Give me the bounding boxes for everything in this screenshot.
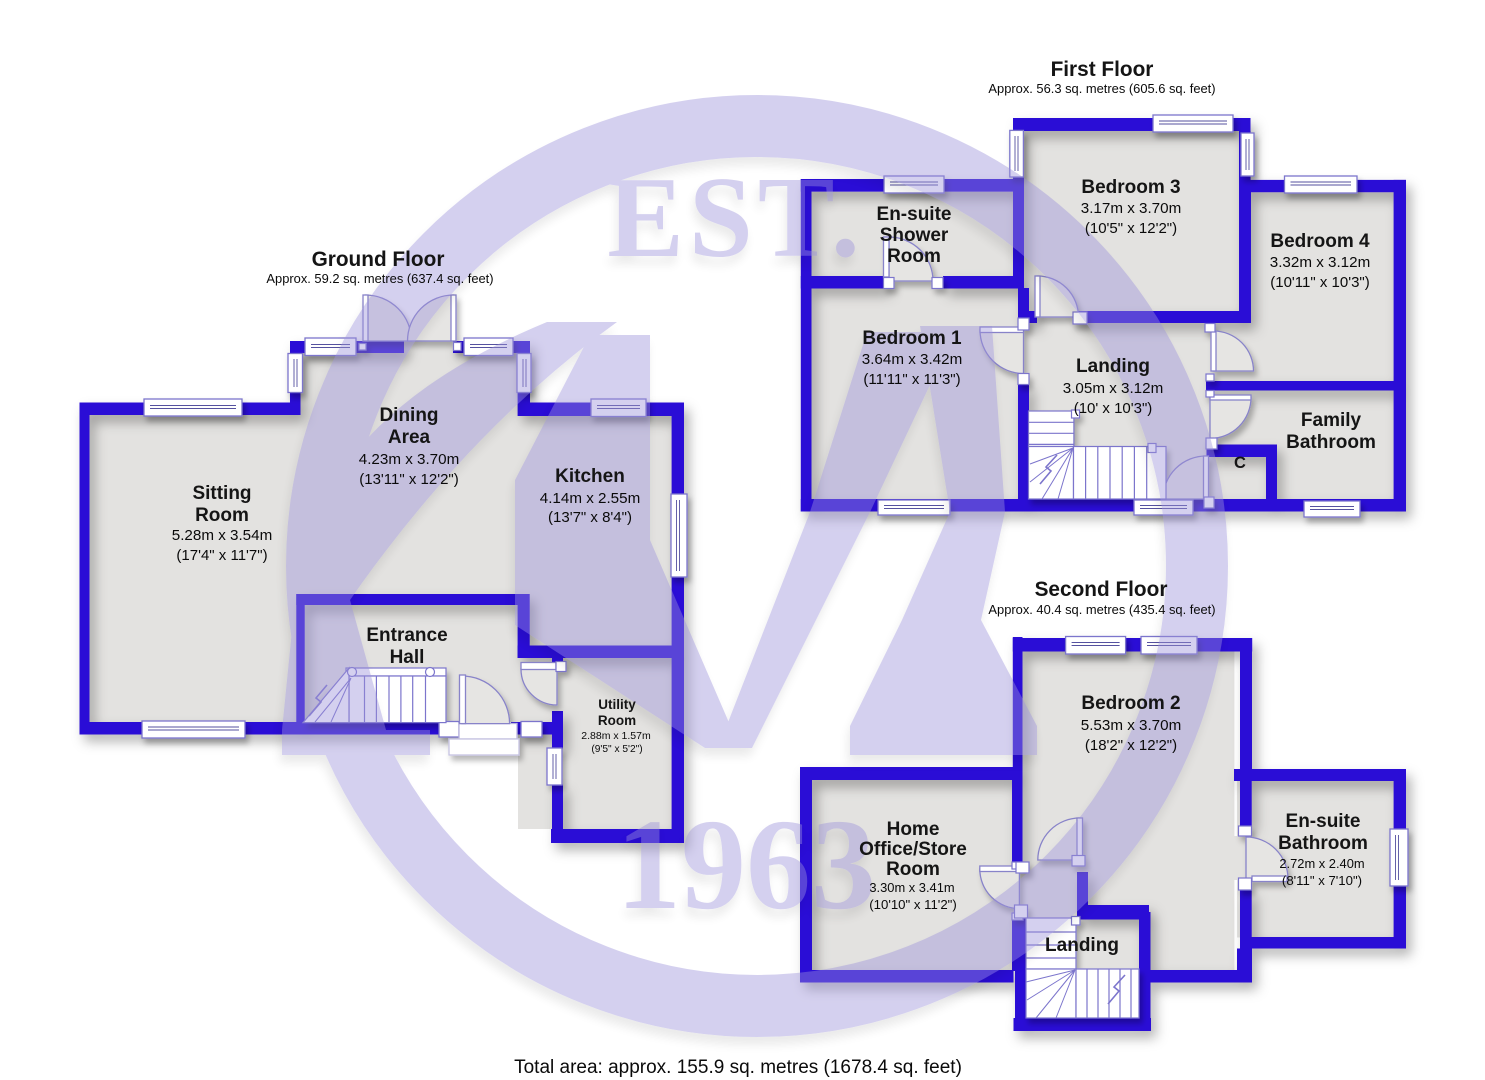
svg-text:Room: Room xyxy=(886,859,940,880)
svg-text:Bathroom: Bathroom xyxy=(1278,833,1368,854)
svg-text:(11'11" x 11'3"): (11'11" x 11'3") xyxy=(863,371,960,388)
svg-text:(13'7" x 8'4"): (13'7" x 8'4") xyxy=(548,509,632,526)
svg-text:5.53m x 3.70m: 5.53m x 3.70m xyxy=(1081,717,1181,734)
svg-text:Sitting: Sitting xyxy=(192,483,251,504)
svg-text:EST.: EST. xyxy=(607,154,865,281)
svg-text:Room: Room xyxy=(598,713,636,728)
svg-text:4.14m x 2.55m: 4.14m x 2.55m xyxy=(540,490,640,507)
svg-text:(17'4" x 11'7"): (17'4" x 11'7") xyxy=(176,547,267,564)
svg-text:2.72m x 2.40m: 2.72m x 2.40m xyxy=(1279,856,1364,871)
svg-text:(9'5" x 5'2"): (9'5" x 5'2") xyxy=(591,744,642,755)
svg-text:3.30m x 3.41m: 3.30m x 3.41m xyxy=(869,880,954,895)
svg-text:Area: Area xyxy=(388,427,431,448)
svg-text:1963: 1963 xyxy=(616,793,876,937)
svg-text:4.23m x 3.70m: 4.23m x 3.70m xyxy=(359,451,459,468)
svg-text:Bedroom 4: Bedroom 4 xyxy=(1270,231,1370,252)
svg-text:3.32m x 3.12m: 3.32m x 3.12m xyxy=(1270,254,1370,271)
svg-text:Bedroom 1: Bedroom 1 xyxy=(862,328,962,349)
svg-text:(18'2" x 12'2"): (18'2" x 12'2") xyxy=(1085,737,1177,754)
svg-text:Utility: Utility xyxy=(598,697,636,712)
svg-text:2.88m x 1.57m: 2.88m x 1.57m xyxy=(581,730,651,742)
svg-text:Office/Store: Office/Store xyxy=(859,839,967,860)
svg-text:5.28m x 3.54m: 5.28m x 3.54m xyxy=(172,527,272,544)
svg-text:Landing: Landing xyxy=(1076,356,1150,377)
svg-text:Shower: Shower xyxy=(880,225,949,246)
svg-text:Total area: approx. 155.9 sq.: Total area: approx. 155.9 sq. metres (16… xyxy=(514,1057,962,1078)
svg-text:Approx. 40.4 sq. metres (435.4: Approx. 40.4 sq. metres (435.4 sq. feet) xyxy=(988,602,1215,617)
svg-text:3.17m x 3.70m: 3.17m x 3.70m xyxy=(1081,200,1181,217)
svg-text:Landing: Landing xyxy=(1045,935,1119,956)
svg-text:En-suite: En-suite xyxy=(877,204,952,225)
svg-text:(8'11" x 7'10"): (8'11" x 7'10") xyxy=(1282,873,1362,888)
svg-text:Approx. 56.3 sq. metres (605.6: Approx. 56.3 sq. metres (605.6 sq. feet) xyxy=(988,81,1215,96)
svg-text:First Floor: First Floor xyxy=(1051,58,1154,81)
svg-text:3.05m x 3.12m: 3.05m x 3.12m xyxy=(1063,380,1163,397)
svg-text:En-suite: En-suite xyxy=(1286,811,1361,832)
svg-text:Room: Room xyxy=(195,505,249,526)
svg-text:(10' x 10'3"): (10' x 10'3") xyxy=(1074,400,1153,417)
svg-text:Entrance: Entrance xyxy=(366,625,447,646)
svg-text:Approx. 59.2 sq. metres (637.4: Approx. 59.2 sq. metres (637.4 sq. feet) xyxy=(266,271,493,286)
svg-text:(10'5" x 12'2"): (10'5" x 12'2") xyxy=(1085,220,1177,237)
svg-text:Kitchen: Kitchen xyxy=(555,466,625,487)
svg-text:(10'11" x 10'3"): (10'11" x 10'3") xyxy=(1270,274,1370,291)
svg-text:Room: Room xyxy=(887,246,941,267)
svg-text:C: C xyxy=(1234,454,1246,472)
svg-text:Ground Floor: Ground Floor xyxy=(312,248,445,271)
svg-text:Second Floor: Second Floor xyxy=(1035,578,1168,601)
svg-text:3.64m x 3.42m: 3.64m x 3.42m xyxy=(862,351,962,368)
svg-text:Hall: Hall xyxy=(390,647,425,668)
svg-text:Bedroom 3: Bedroom 3 xyxy=(1081,177,1180,198)
svg-text:(13'11" x 12'2"): (13'11" x 12'2") xyxy=(359,471,459,488)
svg-text:Dining: Dining xyxy=(379,405,438,426)
svg-text:(10'10" x 11'2"): (10'10" x 11'2") xyxy=(869,897,956,912)
svg-text:Family: Family xyxy=(1301,410,1362,431)
svg-text:Bathroom: Bathroom xyxy=(1286,432,1376,453)
svg-text:Home: Home xyxy=(887,819,940,840)
svg-text:Bedroom 2: Bedroom 2 xyxy=(1081,693,1180,714)
